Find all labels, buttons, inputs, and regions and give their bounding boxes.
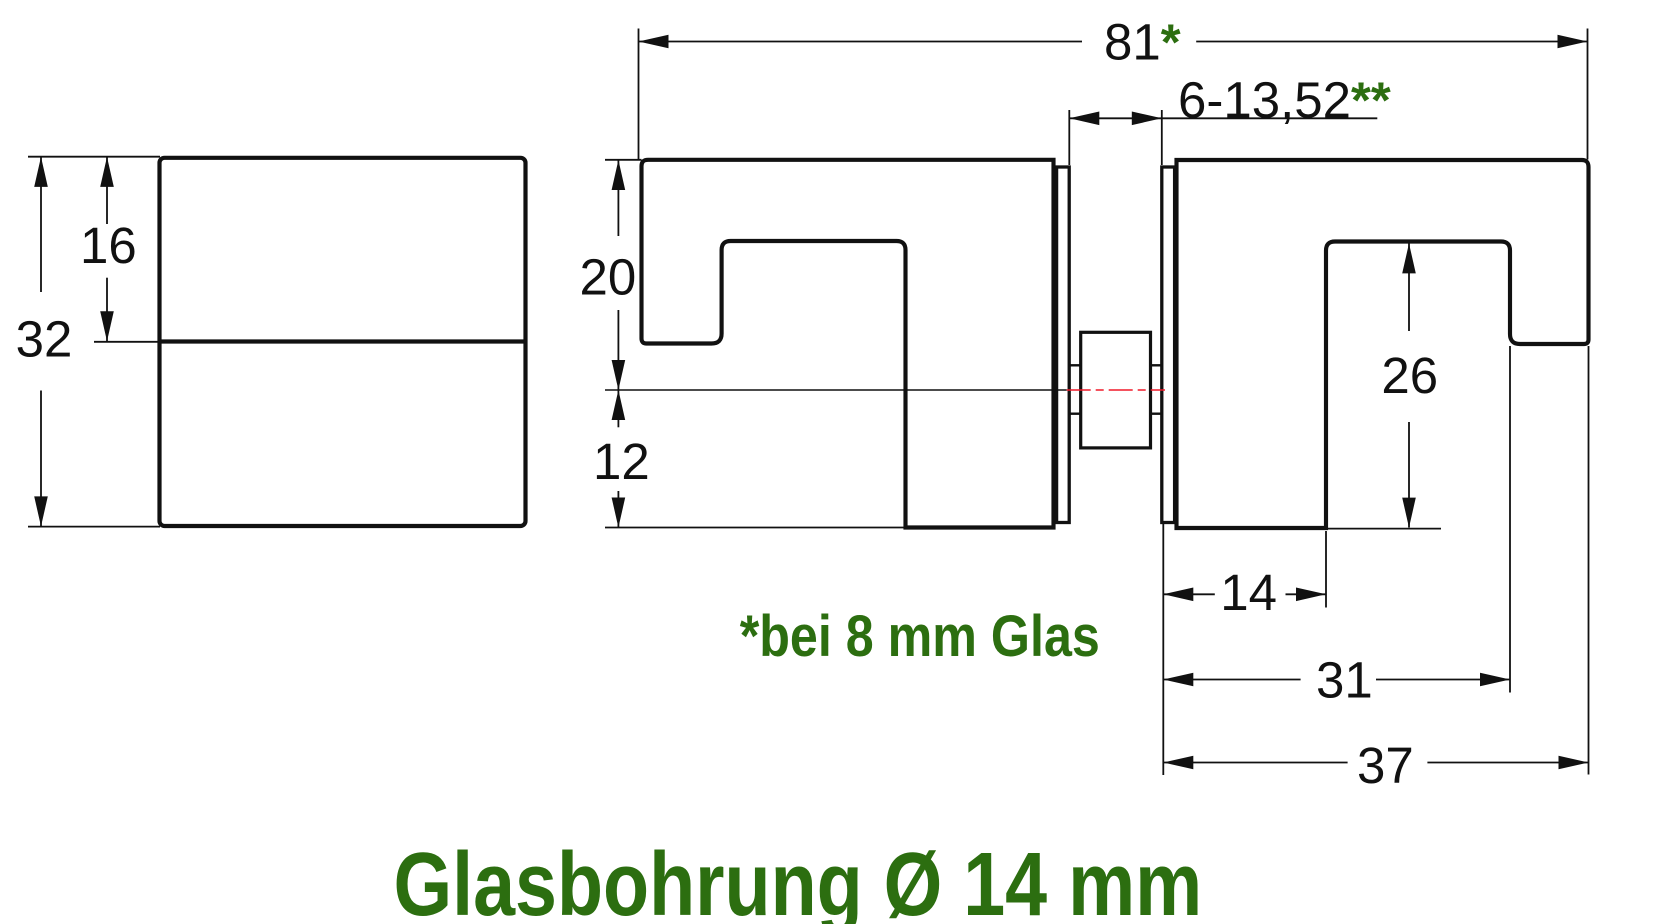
svg-text:6-13,52**: 6-13,52**	[1178, 72, 1391, 129]
svg-text:31: 31	[1316, 652, 1373, 709]
svg-text:37: 37	[1357, 737, 1414, 794]
svg-text:16: 16	[80, 217, 137, 274]
svg-text:12: 12	[593, 433, 650, 490]
svg-text:26: 26	[1381, 347, 1438, 404]
svg-text:Glasbohrung Ø 14 mm: Glasbohrung Ø 14 mm	[394, 834, 1203, 924]
svg-text:81*: 81*	[1104, 14, 1181, 71]
svg-text:14: 14	[1220, 564, 1277, 621]
svg-text:20: 20	[580, 249, 637, 306]
svg-text:*bei 8 mm Glas: *bei 8 mm Glas	[740, 605, 1100, 669]
svg-text:32: 32	[16, 311, 73, 368]
